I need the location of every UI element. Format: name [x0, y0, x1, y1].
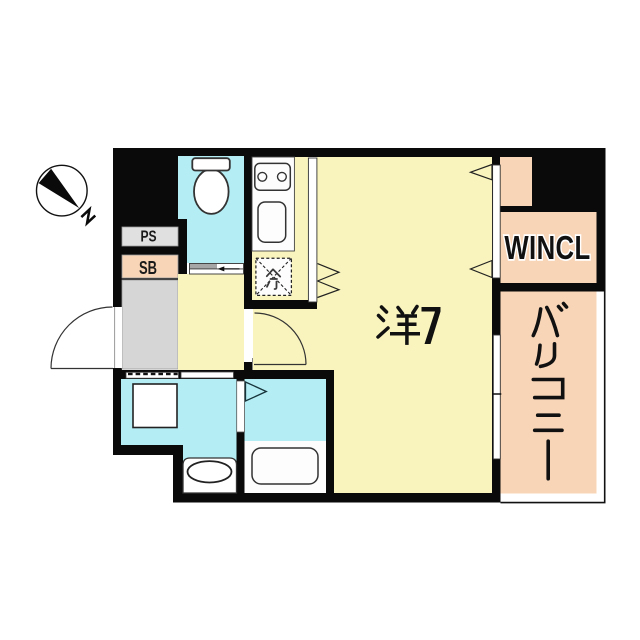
svg-text:PS: PS [140, 227, 156, 245]
svg-text:WINCL: WINCL [504, 230, 590, 267]
svg-text:SB: SB [139, 259, 157, 279]
